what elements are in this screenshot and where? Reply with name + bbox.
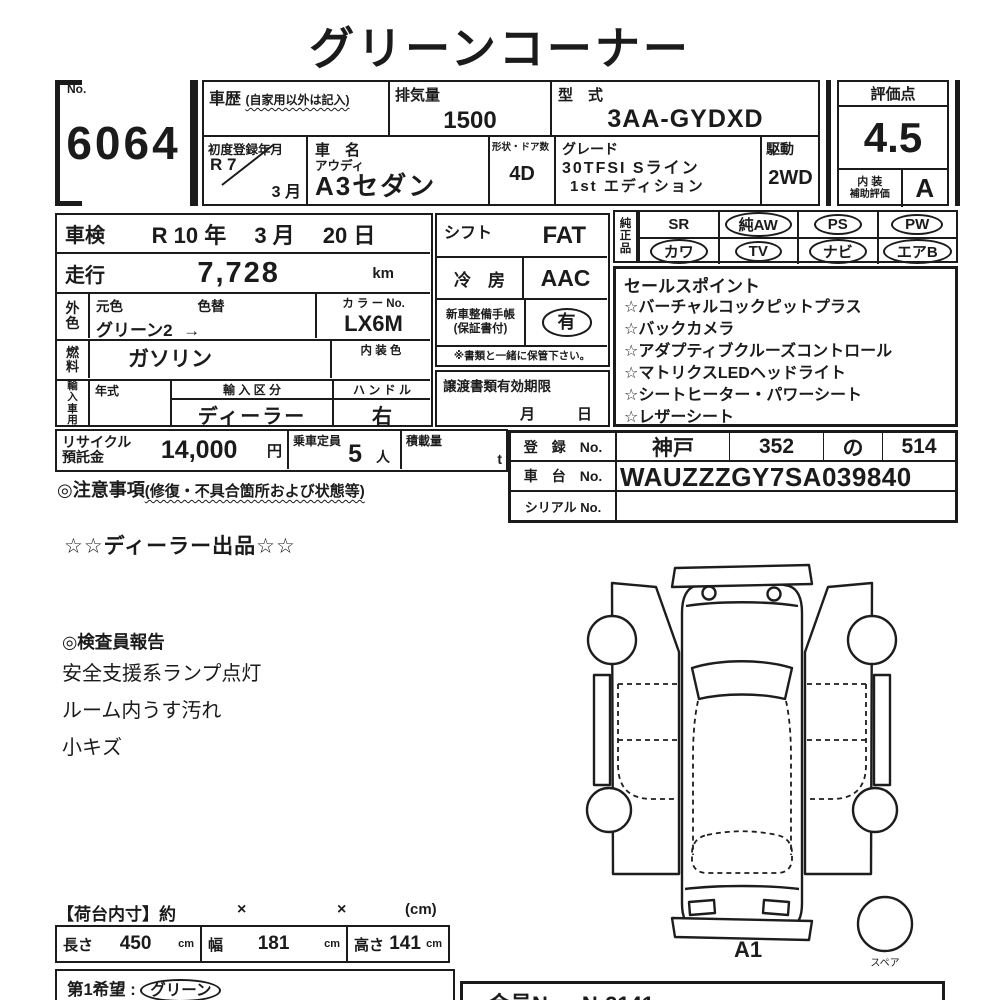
dealer-line: ☆☆ディーラー出品☆☆ xyxy=(64,530,296,560)
car-diagram: A1 スペア xyxy=(555,553,1000,973)
chassis-label: 車 台 No. xyxy=(511,462,617,490)
interior-grade-label: 内 装 補助評価 xyxy=(839,170,903,207)
registration-area: 神戸 xyxy=(617,433,730,460)
cargo-width-value: 181 xyxy=(223,933,324,955)
inspector-items: 安全支援系ランプ点灯 ルーム内うす汚れ 小キズ xyxy=(62,656,261,767)
handle-value: 右 xyxy=(334,400,430,429)
wheel-front-right xyxy=(848,616,896,664)
equipment-item: TV xyxy=(718,239,798,264)
wheel-front-left xyxy=(588,616,636,664)
left-sill xyxy=(594,675,610,785)
grade-line2: 1st エディション xyxy=(570,179,754,196)
ac-label: 冷 房 xyxy=(437,258,524,298)
cargo-times-1: × xyxy=(237,901,246,919)
page-title: グリーンコーナー xyxy=(0,12,1000,77)
wheel-rear-right xyxy=(853,788,897,832)
grade-cell: グレード 30TFSI Sライン 1st エディション xyxy=(556,137,762,205)
exterior-color-label-cell: 外色 xyxy=(57,294,90,338)
divider-bar xyxy=(190,80,198,206)
displacement-value: 1500 xyxy=(395,107,545,135)
interior-color-label: 内 装 色 xyxy=(337,342,425,358)
capacity-cell: 乗車定員 5 人 xyxy=(289,431,402,469)
sales-point-item: ☆バックカメラ xyxy=(624,319,947,341)
model-year-label: 年式 xyxy=(95,384,119,398)
sales-point-item: ☆シートヒーター・パワーシート xyxy=(624,385,947,407)
right-sill xyxy=(874,675,890,785)
recycle-label: リサイクル 預託金 xyxy=(62,435,131,464)
displacement-label: 排気量 xyxy=(395,84,545,105)
ac-value: AAC xyxy=(524,258,607,298)
first-wish-value: グリーン xyxy=(140,979,221,1000)
auction-sheet: グリーンコーナー No. 6064 車歴 (自家用以外は記入) 排気量 1500… xyxy=(0,0,1000,1000)
drive-value: 2WD xyxy=(766,167,815,190)
front-bumper xyxy=(672,565,812,587)
chassis-row: 車 台 No. WAUZZZGY7SA039840 xyxy=(511,462,955,492)
notice-note: (修復・不具合箇所および状態等) xyxy=(145,483,365,500)
color-no-cell: カ ラ ー No. LX6M xyxy=(317,294,430,338)
color-cell: 元色 色替 グリーン2 → xyxy=(90,294,317,338)
import-class-cell: 輸 入 区 分 ディーラー xyxy=(172,381,334,426)
capacity-value: 5 xyxy=(348,440,362,469)
registration-kana: の xyxy=(824,433,883,460)
fuel-value: ガソリン xyxy=(128,348,212,371)
score-inner: 評価点 4.5 内 装 補助評価 A xyxy=(837,80,949,206)
service-book-value-cell: 有 xyxy=(526,300,607,345)
cargo-length-cell: 長さ 450 cm xyxy=(57,927,202,961)
member-no-box: 会員No. N-2141 xyxy=(460,981,945,1000)
registration-table: 登 録 No. 神戸 352 の 514 車 台 No. WAUZZZGY7SA… xyxy=(508,430,958,523)
exterior-color-row: 外色 元色 色替 グリーン2 → カ ラ ー No. LX6M xyxy=(57,294,430,341)
sales-points-label: セールスポイント xyxy=(624,272,947,297)
lot-no-value: 6064 xyxy=(60,116,187,170)
cargo-length-value: 450 xyxy=(93,933,178,955)
spec-table: 車検 R 10 年 3 月 20 日 走行 7,728 km 外色 元色 色替 … xyxy=(55,213,433,427)
shaken-value: R 10 年 3 月 20 日 xyxy=(105,218,422,250)
keep-note-row: ※書類と一緒に保管下さい。 xyxy=(437,347,607,364)
transfer-month: 月 xyxy=(520,403,535,424)
color-no-label: カ ラ ー No. xyxy=(322,295,425,311)
service-book-value: 有 xyxy=(542,308,592,337)
first-wish-label: 第1希望 : xyxy=(67,981,136,999)
sales-point-item: ☆アダプティブクルーズコントロール xyxy=(624,341,947,363)
cargo-header: 【荷台内寸】約 xyxy=(57,900,176,925)
cargo-height-cell: 高さ 141 cm xyxy=(348,927,448,961)
shaken-label: 車検 xyxy=(65,219,105,248)
car-name-value: A3セダン xyxy=(315,173,481,200)
inspector-item: 小キズ xyxy=(62,730,261,767)
serial-row: シリアル No. xyxy=(511,492,955,521)
model-code-cell: 型 式 3AA-GYDXD xyxy=(552,82,819,137)
equipment-grid: SR 純AW PS PW カワ TV ナビ エアB xyxy=(638,210,958,263)
lot-number-box: No. 6064 xyxy=(55,80,187,206)
transfer-box: 譲渡書類有効期限 月 日 xyxy=(435,370,610,427)
interior-color-cell: 内 装 色 xyxy=(332,341,430,378)
score-right-bar xyxy=(955,80,960,206)
history-note: (自家用以外は記入) xyxy=(245,93,349,107)
spare-tire xyxy=(858,897,912,951)
cargo-times-2: × xyxy=(337,901,346,919)
drive-label: 駆動 xyxy=(766,139,815,159)
cargo-unit: (cm) xyxy=(405,901,437,918)
grade-label: グレード xyxy=(562,139,754,159)
registration-class: 352 xyxy=(730,433,824,460)
sales-point-item: ☆レザーシート xyxy=(624,407,947,429)
registration-label: 登 録 No. xyxy=(511,433,617,460)
load-label: 積載量 xyxy=(406,432,442,449)
load-unit: t xyxy=(497,451,502,467)
equipment-item: PW xyxy=(877,212,957,237)
doors-label: 形状・ドア数 xyxy=(492,139,552,153)
fuel-label-cell: 燃料 xyxy=(57,341,90,378)
wheel-rear-left xyxy=(587,788,631,832)
equipment-item: PS xyxy=(797,212,877,237)
cargo-width-cell: 幅 181 cm xyxy=(202,927,348,961)
score-left-bar xyxy=(826,80,831,206)
service-book-label: 新車整備手帳 (保証書付) xyxy=(437,300,526,345)
model-code-label: 型 式 xyxy=(558,84,813,105)
mileage-unit: km xyxy=(372,265,394,282)
diagram-grade-label: A1 xyxy=(734,937,762,962)
mileage-value: 7,728 xyxy=(105,257,372,290)
doors-cell: 形状・ドア数 4D xyxy=(490,137,556,205)
notice-line: ◎注意事項(修復・不具合箇所および状態等) xyxy=(57,476,365,502)
cargo-table: 長さ 450 cm 幅 181 cm 高さ 141 cm xyxy=(55,925,450,963)
recycle-table: リサイクル 預託金 14,000 円 乗車定員 5 人 積載量 t xyxy=(55,429,508,472)
service-book-row: 新車整備手帳 (保証書付) 有 xyxy=(437,300,607,347)
sales-point-item: ☆マトリクスLEDヘッドライト xyxy=(624,363,947,385)
doors-value: 4D xyxy=(492,163,552,186)
displacement-cell: 排気量 1500 xyxy=(390,82,552,137)
interior-grade-value: A xyxy=(903,170,947,207)
fuel-row: 燃料 ガソリン 内 装 色 xyxy=(57,341,430,381)
color-change-label: 色替 xyxy=(197,299,224,314)
member-no-label: 会員No. xyxy=(488,992,567,1000)
model-year-cell: 年式 xyxy=(90,381,172,426)
import-class-label: 輸 入 区 分 xyxy=(172,381,332,400)
recycle-unit: 円 xyxy=(267,440,282,461)
drive-cell: 駆動 2WD xyxy=(762,137,819,205)
inspector-label: ◎検査員報告 xyxy=(62,629,165,654)
sales-points-box: セールスポイント ☆バーチャルコックピットプラス ☆バックカメラ ☆アダプティブ… xyxy=(613,266,958,427)
shaken-row: 車検 R 10 年 3 月 20 日 xyxy=(57,215,430,254)
equipment-item: カワ xyxy=(640,239,718,264)
equipment-row-2: カワ TV ナビ エアB xyxy=(640,237,956,264)
equipment-item: 純AW xyxy=(718,212,798,237)
transfer-day: 日 xyxy=(577,403,592,424)
history-label: 車歴 xyxy=(209,91,241,108)
first-registration-month: 3 月 xyxy=(272,178,301,202)
load-cell: 積載量 t xyxy=(402,431,510,469)
model-code-value: 3AA-GYDXD xyxy=(558,105,813,134)
car-name-cell: 車 名 アウディ A3セダン xyxy=(308,137,490,205)
equipment-item: SR xyxy=(640,212,718,237)
capacity-label: 乗車定員 xyxy=(293,432,341,449)
score-label: 評価点 xyxy=(839,82,947,107)
ac-row: 冷 房 AAC xyxy=(437,258,607,300)
cargo-height-value: 141 xyxy=(384,933,426,955)
handle-cell: ハ ン ド ル 右 xyxy=(334,381,430,426)
first-registration-year: R 7 xyxy=(210,155,236,175)
chassis-value: WAUZZZGY7SA039840 xyxy=(617,462,955,490)
lot-no-label: No. xyxy=(67,82,86,96)
color-value: グリーン2 xyxy=(96,321,173,340)
notice-label: ◎注意事項 xyxy=(57,480,145,500)
mileage-label: 走行 xyxy=(65,259,105,288)
inspector-item: 安全支援系ランプ点灯 xyxy=(62,656,261,693)
sales-point-item: ☆バーチャルコックピットプラス xyxy=(624,297,947,319)
spare-label: スペア xyxy=(870,958,899,969)
first-wish-box: 第1希望 : グリーン xyxy=(55,969,455,1000)
car-body xyxy=(682,582,802,932)
fuel-value-cell: ガソリン xyxy=(90,341,332,378)
shift-label: シフト xyxy=(444,219,492,243)
score-box: 評価点 4.5 内 装 補助評価 A xyxy=(826,80,960,206)
orig-color-label: 元色 xyxy=(96,299,123,314)
recycle-cell: リサイクル 預託金 14,000 円 xyxy=(57,431,289,469)
registration-row: 登 録 No. 神戸 352 の 514 xyxy=(511,433,955,462)
color-no-value: LX6M xyxy=(322,311,425,337)
serial-value xyxy=(617,492,955,521)
import-class-value: ディーラー xyxy=(172,400,332,429)
member-no-value: N-2141 xyxy=(582,992,654,1000)
import-row: 輸入車用 年式 輸 入 区 分 ディーラー ハ ン ド ル 右 xyxy=(57,381,430,426)
score-value: 4.5 xyxy=(839,107,947,168)
grade-line1: 30TFSI Sライン xyxy=(562,159,754,179)
shift-value: FAT xyxy=(492,222,586,250)
transfer-label: 譲渡書類有効期限 xyxy=(443,375,602,395)
equipment-item: エアB xyxy=(877,239,957,264)
first-registration-cell: 初度登録年月 R 7 3 月 xyxy=(204,137,308,205)
inspector-item: ルーム内うす汚れ xyxy=(62,693,261,730)
equipment-row-1: SR 純AW PS PW xyxy=(640,212,956,237)
capacity-unit: 人 xyxy=(376,447,390,467)
color-arrow: → xyxy=(183,321,200,340)
shift-row: シフト FAT xyxy=(437,215,607,258)
vehicle-header-table: 車歴 (自家用以外は記入) 排気量 1500 型 式 3AA-GYDXD 初度登… xyxy=(202,80,820,206)
history-cell: 車歴 (自家用以外は記入) xyxy=(204,82,390,137)
registration-number: 514 xyxy=(883,433,955,460)
car-name-label: 車 名 xyxy=(315,142,360,159)
recycle-value: 14,000 xyxy=(131,436,267,465)
handle-label: ハ ン ド ル xyxy=(334,381,430,400)
serial-label: シリアル No. xyxy=(511,492,617,521)
shift-table: シフト FAT 冷 房 AAC 新車整備手帳 (保証書付) 有 ※書類と一緒に保… xyxy=(435,213,610,367)
equipment-label-cell: 純正品 xyxy=(613,210,638,263)
mileage-row: 走行 7,728 km xyxy=(57,254,430,294)
import-label-cell: 輸入車用 xyxy=(57,381,90,426)
equipment-item: ナビ xyxy=(797,239,877,264)
